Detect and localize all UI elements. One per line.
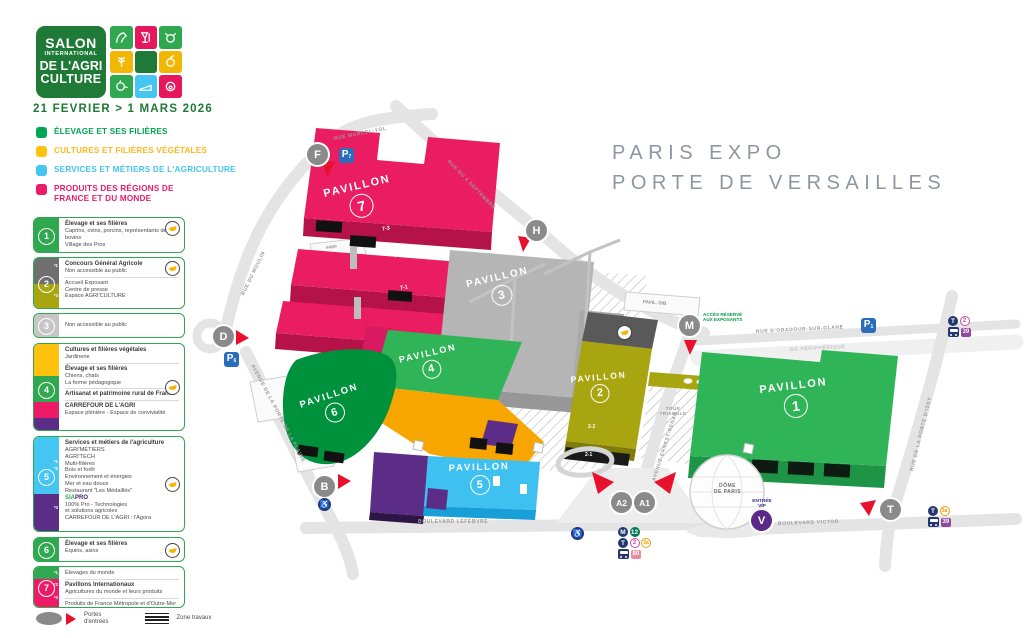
tram-icon: T xyxy=(618,538,628,548)
marker: *2 xyxy=(54,466,58,471)
tram-line-3a-icon: 3a xyxy=(940,506,950,516)
pavilion-2-label: PAVILLON 2 xyxy=(561,369,638,406)
gate-t: T xyxy=(880,499,901,520)
metro-line-12-icon: 12 xyxy=(630,527,640,537)
tram-line-2-icon: 2 xyxy=(630,538,640,548)
parking-number: 7 xyxy=(348,148,351,166)
bus-line-39-icon: 39 xyxy=(941,518,952,527)
transit-group-versailles: M 12 T 2 3a 80 xyxy=(618,527,651,559)
concours-badge-icon xyxy=(617,325,632,340)
parking-letter: P xyxy=(864,318,871,332)
dome-line: DE PARIS xyxy=(705,489,750,495)
marker: *1 xyxy=(54,263,58,268)
dome-de-paris-label: DÔME DE PARIS xyxy=(705,483,750,495)
marker: *1 xyxy=(54,570,58,575)
bus-line-39-icon: 39 xyxy=(961,328,972,337)
wheelchair-icon: ♿ xyxy=(318,498,331,511)
parking-p6-icon: P6 xyxy=(224,352,239,367)
wheelchair-icon: ♿ xyxy=(571,527,584,540)
pavilion-7-1-label: 7-1 xyxy=(400,284,409,291)
venue-title-line2: PORTE DE VERSAILLES xyxy=(612,172,946,195)
marker: *1 xyxy=(54,459,58,464)
concours-badge-icon xyxy=(165,221,180,236)
gate-h: H xyxy=(526,220,547,241)
parking-letter: P xyxy=(342,148,349,162)
pavilion-number: 1 xyxy=(782,393,809,420)
entree-vip-label: ENTRÉE VIP xyxy=(752,499,772,510)
transit-group-issy-south: T 3a 39 xyxy=(928,506,951,527)
tour-triangle-label: TOUR TRIANGLE xyxy=(652,406,694,417)
card2-number: 2 xyxy=(38,276,55,293)
gate-f: F xyxy=(307,144,328,165)
marker: *3 xyxy=(54,595,58,600)
card1-number: 1 xyxy=(38,228,55,245)
card4-number: 4 xyxy=(38,382,55,399)
pavilion-number: 5 xyxy=(469,475,490,496)
marker: *3 xyxy=(54,505,58,510)
card3-number: 3 xyxy=(38,318,55,335)
acces-line: AUX EXPOSANTS xyxy=(703,317,742,322)
gate-b: B xyxy=(314,476,335,497)
pavilion-2-2-label: 2-2 xyxy=(588,424,595,430)
pavilion-word: PAVILLON xyxy=(431,460,526,474)
bus-icon xyxy=(618,549,629,559)
metro-icon: M xyxy=(618,527,628,537)
tour-line: TRIANGLE xyxy=(652,411,694,416)
gate-d: D xyxy=(213,326,234,347)
gate-a1: A1 xyxy=(634,492,655,513)
concours-badge-icon xyxy=(165,477,180,492)
card5-number: 5 xyxy=(38,469,55,486)
parking-number: 6 xyxy=(233,352,236,370)
vip-line: VIP xyxy=(752,504,772,509)
parking-p7-icon: P7 xyxy=(339,148,354,163)
pavilion-number: 2 xyxy=(590,383,611,404)
acces-exposants-label: ACCÈS RÉSERVÉ AUX EXPOSANTS xyxy=(703,312,742,323)
tram-icon: T xyxy=(948,316,958,326)
card6-number: 6 xyxy=(38,542,55,559)
marker: *3 xyxy=(54,293,58,298)
tram-line-3a-icon: 3a xyxy=(641,538,651,548)
concours-badge-icon xyxy=(165,380,180,395)
gate-a2: A2 xyxy=(611,492,632,513)
concours-badge-icon xyxy=(165,543,180,558)
bus-line-80-icon: 80 xyxy=(631,550,642,559)
card7-number: 7 xyxy=(38,580,55,597)
street-lefebvre: BOULEVARD LEFEBVRE xyxy=(418,519,488,525)
transit-group-issy-north: T 2 39 xyxy=(948,316,971,337)
tram-line-2-icon: 2 xyxy=(960,316,970,326)
venue-title-line1: PARIS EXPO xyxy=(612,142,787,165)
bus-icon xyxy=(948,327,959,337)
pavilion-7-3-label: 7-3 xyxy=(382,225,391,232)
gate-v-vip: V xyxy=(751,510,772,531)
pavilion-5-label: PAVILLON 5 xyxy=(431,460,527,496)
tram-icon: T xyxy=(928,506,938,516)
parking-number: 1 xyxy=(870,318,873,336)
bus-icon xyxy=(928,517,939,527)
gate-m: M xyxy=(679,315,700,336)
parking-letter: P xyxy=(227,352,234,366)
concours-badge-icon xyxy=(165,261,180,276)
pavilion-2-1-label: 2-1 xyxy=(585,452,592,458)
pavilion-7-2-label: 7-2 xyxy=(394,252,403,259)
parking-p1-icon: P1 xyxy=(861,318,876,333)
